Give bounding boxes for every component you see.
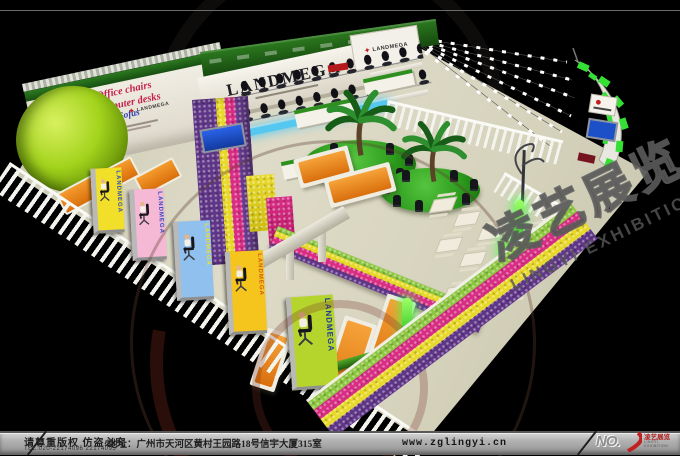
logo-en-text: LINGYI EXHIBITION xyxy=(644,441,678,448)
company-address: 地址：广州市天河区黄村王园路18号信宇大厦315室 xyxy=(108,436,322,450)
booth-render-board: Office chairs Computer desks Sofas ✦ LAN… xyxy=(0,0,680,456)
swoosh-icon xyxy=(620,431,643,452)
banner-yellow: LANDMEGA xyxy=(90,167,124,234)
star-icon: ✦ xyxy=(128,107,136,116)
tower-screen xyxy=(587,119,617,141)
phone-numbers: TEL:020-22174096 22174095 xyxy=(24,446,116,452)
lingyi-no1-logo: NO. 凌艺展览 LINGYI EXHIBITION xyxy=(596,431,678,452)
seated-person-icon xyxy=(97,172,114,209)
website-url: www.zglingyi.cn xyxy=(402,438,507,449)
lamp-post-arms xyxy=(498,136,550,176)
no1-logo-text: NO. xyxy=(596,433,620,450)
seated-person-icon xyxy=(135,193,153,234)
